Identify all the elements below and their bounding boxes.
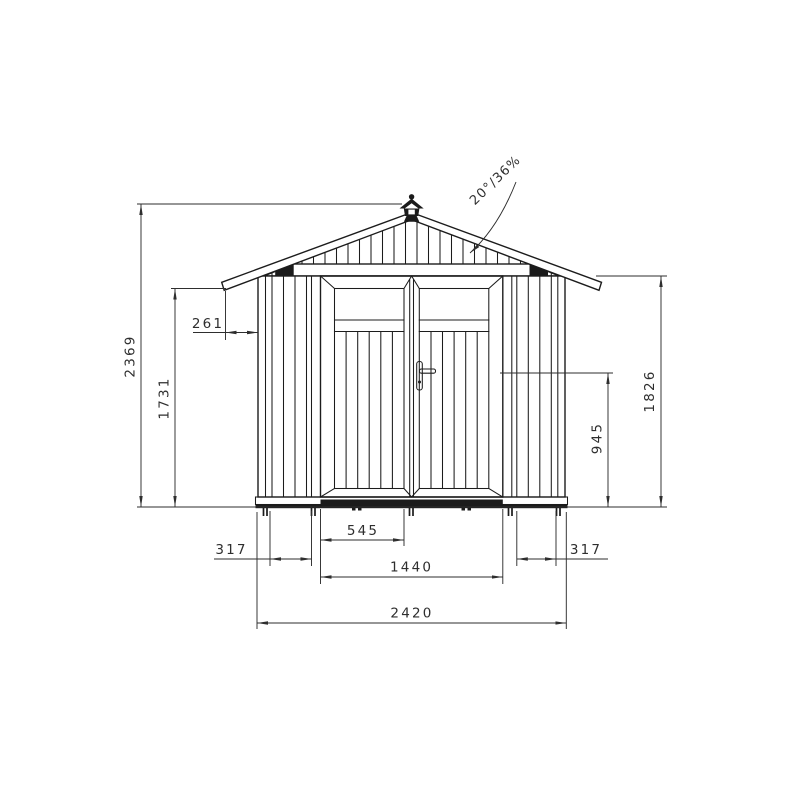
roof-finial-base [404,216,419,222]
base-skid [256,497,568,516]
dim-right-panel-width: 317 [517,511,608,566]
dim-label-wall-height: 1826 [642,369,658,412]
dim-label-handle-height: 945 [590,422,606,454]
dim-label-left-panel-width: 317 [215,542,247,558]
dim-label-roof-pitch: 20°/36% [467,153,524,209]
dim-door-opening-width: 1440 [321,509,503,584]
door-keyhole [418,381,421,384]
dim-label-roof-overhang: 261 [192,316,224,332]
shed [222,194,602,516]
dim-label-eave-height: 1731 [157,376,173,419]
head-trim-band [293,264,530,276]
dim-label-door-leaf-width: 545 [347,523,379,539]
roof-finial-slot [408,210,414,215]
base-dark-band [256,504,568,508]
shed-elevation-drawing: 2369 1731 261 1826 945 [0,0,800,800]
skid-feet-ticks [264,508,561,516]
dim-left-panel-width: 317 [214,511,312,566]
door-threshold [321,500,503,505]
dim-door-leaf-width: 545 [321,509,405,546]
wall-panel [258,276,565,497]
page: 2369 1731 261 1826 945 [0,0,800,800]
dim-label-right-panel-width: 317 [570,542,602,558]
dim-wall-height: 1826 [596,276,667,507]
dim-label-overall-height: 2369 [123,334,139,377]
dim-label-overall-width: 2420 [390,606,433,622]
roof-finial-cap [400,199,424,209]
dim-label-door-opening-width: 1440 [390,560,433,576]
dim-roof-overhang: 261 [192,291,258,340]
